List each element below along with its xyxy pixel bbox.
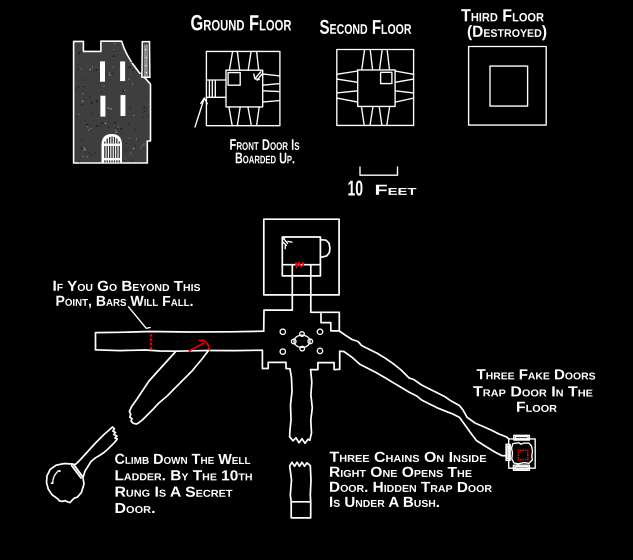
svg-text:Floor: Floor xyxy=(516,400,558,416)
svg-text:Point, Bars Will Fall.: Point, Bars Will Fall. xyxy=(55,294,193,310)
svg-text:10: 10 xyxy=(347,177,363,201)
svg-text:Second Floor: Second Floor xyxy=(319,17,411,39)
svg-text:Trap Door In The: Trap Door In The xyxy=(473,384,593,400)
svg-text:Third Floor: Third Floor xyxy=(461,5,544,25)
svg-text:Boarded Up.: Boarded Up. xyxy=(235,150,295,167)
svg-text:If You Go Beyond This: If You Go Beyond This xyxy=(52,279,200,295)
svg-text:(Destroyed): (Destroyed) xyxy=(467,24,547,41)
svg-text:Climb Down The Well: Climb Down The Well xyxy=(114,452,250,468)
svg-text:Is Under A Bush.: Is Under A Bush. xyxy=(329,495,440,511)
svg-text:Door. Hidden Trap Door: Door. Hidden Trap Door xyxy=(329,480,493,496)
svg-text:Feet: Feet xyxy=(374,183,416,199)
svg-text:Three Fake Doors: Three Fake Doors xyxy=(476,367,595,383)
svg-text:Three Chains On Inside: Three Chains On Inside xyxy=(329,450,486,466)
svg-text:Door.: Door. xyxy=(114,501,155,517)
svg-text:Rung Is A Secret: Rung Is A Secret xyxy=(114,485,232,501)
svg-text:Right One Opens The: Right One Opens The xyxy=(329,465,472,481)
svg-text:Ladder. By The 10th: Ladder. By The 10th xyxy=(114,468,252,484)
svg-text:Ground Floor: Ground Floor xyxy=(190,10,291,35)
